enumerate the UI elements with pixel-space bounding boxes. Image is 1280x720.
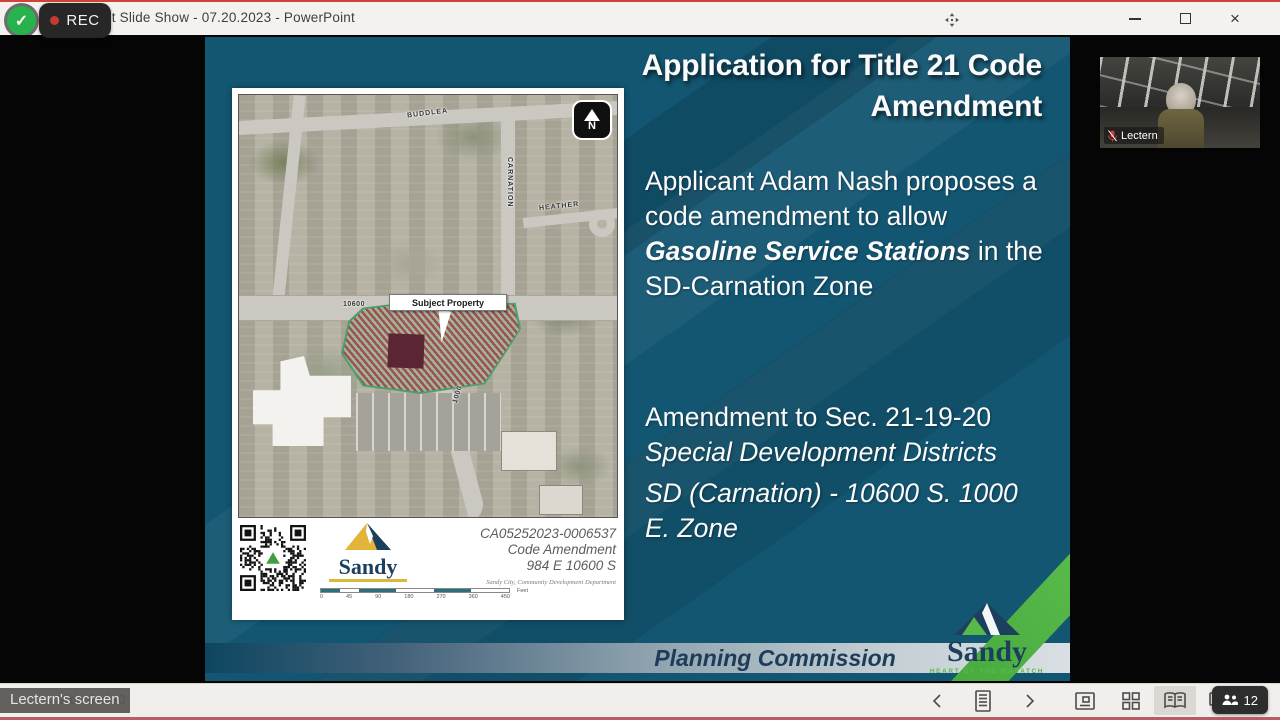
street-label-heather: HEATHER xyxy=(539,201,580,212)
map-sandy-logo: Sandy xyxy=(318,522,418,582)
participants-icon xyxy=(1222,694,1238,706)
shared-screen-owner-label: Lectern's screen xyxy=(0,688,130,713)
maximize-button[interactable] xyxy=(1162,2,1208,35)
recording-indicator[interactable]: REC xyxy=(39,3,111,38)
annotation-menu-button[interactable] xyxy=(963,684,1003,717)
road xyxy=(501,119,515,323)
qr-code xyxy=(240,525,306,591)
close-button[interactable]: × xyxy=(1212,2,1258,35)
sandy-mountain-icon xyxy=(944,601,1030,637)
statusbar: Slide 6 of 10 xyxy=(0,683,1280,717)
move-cursor-icon xyxy=(944,12,960,28)
building xyxy=(501,431,557,471)
webcam-tile[interactable]: Lectern xyxy=(1100,57,1260,148)
slide-paragraph-2: Amendment to Sec. 21-19-20 Special Devel… xyxy=(645,400,1049,546)
slide[interactable]: Application for Title 21 Code Amendment … xyxy=(205,37,1070,681)
scale-bar: 0 45 90 180 270 360 450 Feet xyxy=(320,588,510,600)
north-arrow-icon: N xyxy=(574,102,610,138)
shared-screen: nt Slide Show - 07.20.2023 - PowerPoint … xyxy=(0,0,1280,720)
cul-de-sac xyxy=(589,211,615,237)
recording-label: REC xyxy=(66,12,99,29)
case-type: Code Amendment xyxy=(480,542,616,558)
next-slide-button[interactable] xyxy=(1010,684,1050,717)
slideshow-stage: Application for Title 21 Code Amendment … xyxy=(0,35,1280,683)
reading-view-button[interactable] xyxy=(1154,686,1196,715)
case-id: CA05252023-0006537 xyxy=(480,526,616,542)
mic-muted-icon xyxy=(1108,130,1117,142)
map-sandy-wordmark: Sandy xyxy=(318,557,418,577)
minimize-button[interactable] xyxy=(1112,2,1158,35)
parking-lot xyxy=(356,393,501,451)
subject-property-callout: Subject Property xyxy=(389,294,507,311)
subject-property-parcel xyxy=(341,298,521,394)
map-footer: Sandy 0 xyxy=(238,518,618,608)
normal-view-button[interactable] xyxy=(1064,686,1106,715)
subject-property-building xyxy=(387,333,424,368)
window-titlebar[interactable]: nt Slide Show - 07.20.2023 - PowerPoint … xyxy=(0,2,1280,35)
participants-count: 12 xyxy=(1244,693,1258,708)
aerial-map: Subject Property BUDDLEA CARNATION HEATH… xyxy=(238,94,618,518)
building xyxy=(539,485,583,515)
recording-border-top xyxy=(0,0,1280,2)
sandy-wordmark: Sandy xyxy=(912,638,1062,666)
webcam-name-label: Lectern xyxy=(1104,127,1164,144)
slide-sorter-view-button[interactable] xyxy=(1110,686,1152,715)
slide-paragraph-1: Applicant Adam Nash proposes a code amen… xyxy=(645,164,1049,304)
participants-count-badge[interactable]: 12 xyxy=(1212,686,1268,714)
window-title: nt Slide Show - 07.20.2023 - PowerPoint xyxy=(104,10,355,25)
sandy-tagline: HEART OF THE WASATCH xyxy=(912,668,1062,675)
sandy-city-logo: Sandy HEART OF THE WASATCH xyxy=(912,601,1062,675)
green-check-shield-icon: ✓ xyxy=(7,6,36,35)
previous-slide-button[interactable] xyxy=(917,684,957,717)
street-label-10600: 10600 xyxy=(343,301,365,308)
record-dot-icon xyxy=(50,16,59,25)
department-label: Sandy City, Community Development Depart… xyxy=(480,579,616,586)
zoning-map-panel: Subject Property BUDDLEA CARNATION HEATH… xyxy=(232,88,624,620)
scale-unit-label: Feet xyxy=(517,588,528,594)
street-label-carnation: CARNATION xyxy=(506,157,513,207)
case-address: 984 E 10600 S xyxy=(480,558,616,574)
map-case-info: CA05252023-0006537 Code Amendment 984 E … xyxy=(480,526,616,586)
large-building xyxy=(253,356,351,446)
footer-band-label: Planning Commission xyxy=(645,645,905,672)
map-sandy-mountain-icon xyxy=(337,522,399,552)
